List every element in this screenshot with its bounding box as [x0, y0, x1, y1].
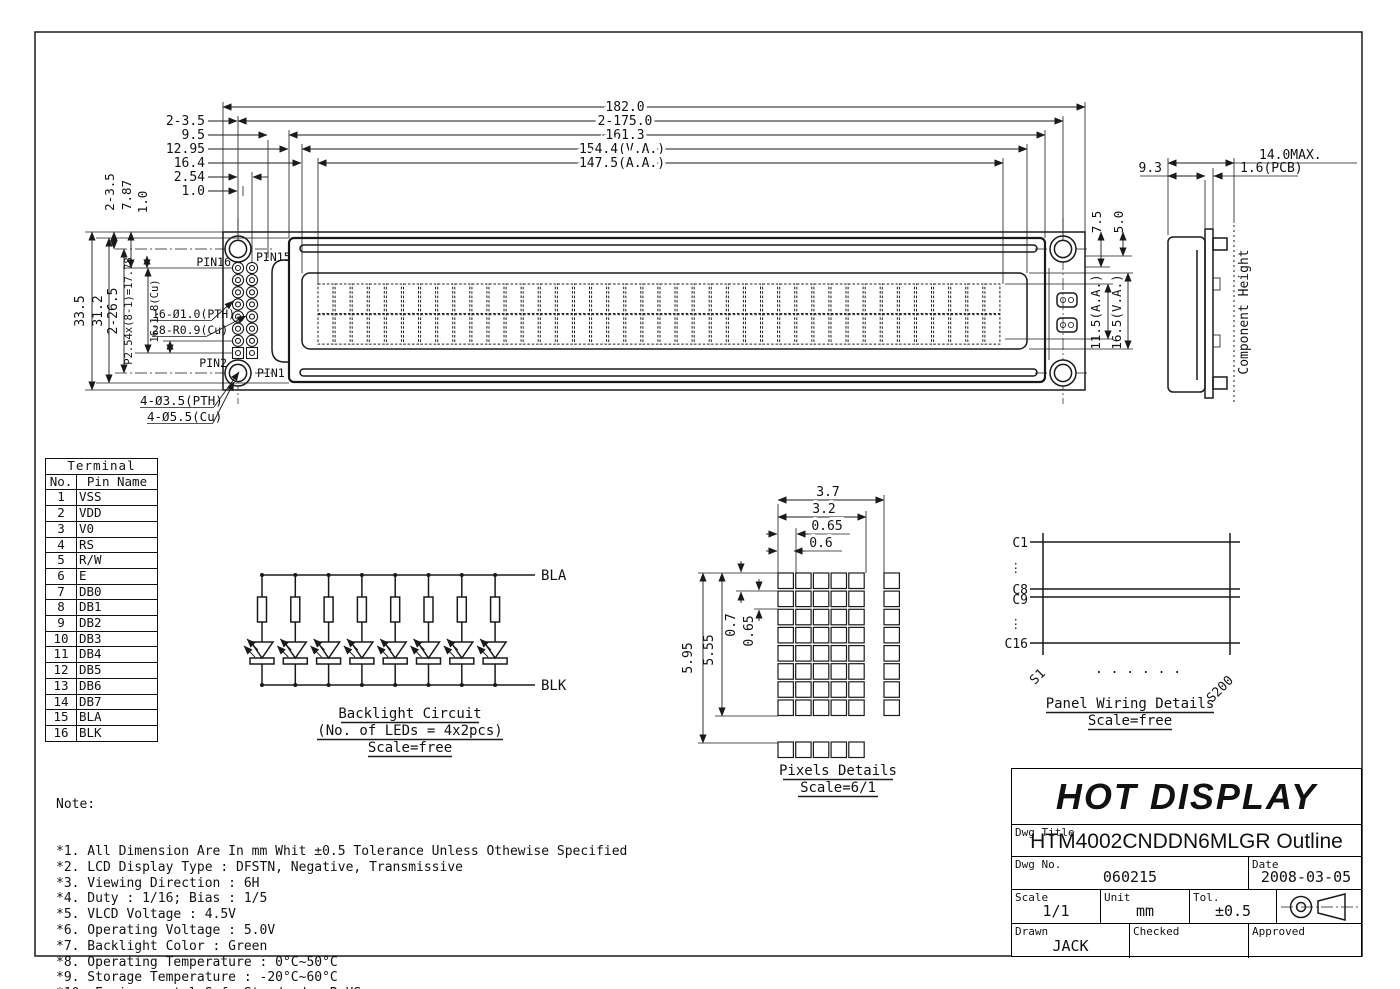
terminal-row: 5R/W	[46, 553, 158, 569]
pixel-cell	[778, 627, 793, 643]
char-cell	[369, 284, 384, 314]
wiring-title: Panel Wiring Details	[1046, 696, 1215, 712]
char-cell	[557, 315, 572, 345]
title-block: HOT DISPLAY Dwg Title HTM4002CNDDN6MLGR …	[1011, 768, 1362, 957]
led-branch	[344, 573, 374, 687]
pixel-cell	[813, 700, 828, 716]
pin-offset-dimensions: 2-3.5 7.87 1.0	[102, 173, 232, 268]
wiring-dots-top: ⋮	[1010, 560, 1023, 575]
backlight-subtitle: (No. of LEDs = 4x2pcs)	[317, 723, 502, 739]
char-cell	[506, 315, 521, 345]
note-line: *1. All Dimension Are In mm Whit ±0.5 To…	[56, 844, 627, 860]
pixel-cell	[778, 573, 793, 589]
dim-16-1p8: 16-1.8(Cu)	[149, 279, 161, 342]
pixel-cell	[849, 742, 864, 758]
pixel-cell	[849, 627, 864, 643]
pixel-cell	[796, 646, 811, 662]
terminal-pin-name: DB1	[77, 600, 158, 616]
char-cell	[643, 284, 658, 314]
pixel-cell	[778, 591, 793, 607]
char-cell	[865, 315, 880, 345]
dwg-title-row: Dwg Title HTM4002CNDDN6MLGR Outline	[1012, 824, 1361, 856]
terminal-pin-name: DB0	[77, 584, 158, 600]
resistor	[291, 597, 300, 622]
dim-161: 161.3	[605, 128, 644, 143]
note-line: *5. VLCD Voltage : 4.5V	[56, 907, 627, 923]
pixel-cell	[778, 609, 793, 625]
pixel-cell	[849, 573, 864, 589]
terminal-no: 15	[46, 710, 77, 726]
char-cell	[763, 284, 778, 314]
backlight-circuit: BLA BLK Backlight Circuit (No. of LEDs =…	[244, 568, 567, 757]
char-cell	[934, 284, 949, 314]
led-branch	[477, 573, 507, 687]
pin-hole	[236, 314, 241, 319]
pixels-title: Pixels Details	[779, 763, 897, 779]
pixel-cell	[831, 664, 846, 680]
dim-16p5-va: 16.5(V.A.)	[1109, 274, 1124, 349]
terminal-no: 2	[46, 506, 77, 522]
char-cell	[917, 284, 932, 314]
dim-31p2: 31.2	[91, 295, 106, 326]
char-cell	[489, 315, 504, 345]
char-cell	[746, 284, 761, 314]
pixel-cell	[796, 682, 811, 698]
led-triangle	[384, 642, 406, 658]
pin-hole	[250, 326, 255, 331]
dim-9p3: 9.3	[1139, 161, 1162, 176]
char-cell	[677, 284, 692, 314]
pixel-cell	[831, 646, 846, 662]
terminal-table: Terminal No. Pin Name 1VSS2VDD3V04RS5R/W…	[45, 458, 158, 742]
dim-pin-2-3p5: 2-3.5	[102, 173, 117, 211]
led-triangle	[418, 642, 440, 658]
pixel-cell	[831, 700, 846, 716]
pixel-cell	[796, 591, 811, 607]
terminal-row: 12DB5	[46, 663, 158, 679]
pin-hole	[236, 326, 241, 331]
terminal-row: 10DB3	[46, 631, 158, 647]
char-cell	[917, 315, 932, 345]
terminal-row: 2VDD	[46, 506, 158, 522]
pin-hole	[236, 266, 241, 271]
pcb-side	[1205, 229, 1213, 398]
resistor	[357, 597, 366, 622]
emission-arrow	[377, 646, 388, 657]
terminal-no: 6	[46, 568, 77, 584]
pin15-label: PIN15	[256, 250, 291, 264]
px-dim-5p95: 5.95	[681, 642, 696, 673]
pin-hole	[236, 290, 241, 295]
pixel-cell	[849, 609, 864, 625]
char-cell	[404, 315, 419, 345]
char-cell	[831, 284, 846, 314]
pin-hole	[250, 338, 255, 343]
char-cell	[660, 315, 675, 345]
wiring-c1: C1	[1012, 536, 1028, 551]
note-line: *3. Viewing Direction : 6H	[56, 876, 627, 892]
char-cell	[540, 315, 555, 345]
resistor	[424, 597, 433, 622]
component-height-label: Component Height	[1237, 249, 1252, 374]
pixel-cell	[813, 591, 828, 607]
px-dim-0p6: 0.6	[809, 536, 832, 551]
terminal-pin-name: DB2	[77, 616, 158, 632]
backlight-title: Backlight Circuit	[338, 706, 481, 722]
resistor	[457, 597, 466, 622]
char-cell	[592, 284, 607, 314]
terminal-pin-name: R/W	[77, 553, 158, 569]
terminal-row: 3V0	[46, 521, 158, 537]
pixel-cell	[813, 742, 828, 758]
terminal-no: 7	[46, 584, 77, 600]
char-cell	[643, 315, 658, 345]
dim-11p5-aa: 11.5(A.A.)	[1088, 274, 1103, 349]
px-dim-5p55: 5.55	[702, 634, 717, 665]
terminal-no: 10	[46, 631, 77, 647]
dim-7p5: 7.5	[1089, 211, 1104, 234]
pth-note: 16-Ø1.0(PTH)	[152, 307, 235, 321]
terminal-pin-name: BLK	[77, 725, 158, 741]
terminal-col-name: Pin Name	[77, 474, 158, 490]
approved-cell: Approved	[1248, 924, 1363, 958]
tol-value: ±0.5	[1190, 902, 1276, 920]
char-cell	[728, 315, 743, 345]
dim-16p4: 16.4	[174, 156, 205, 171]
pixels-scale: Scale=6/1	[800, 780, 876, 796]
char-cell	[848, 315, 863, 345]
char-cell	[763, 315, 778, 345]
emission-arrow	[347, 639, 358, 650]
emission-arrow	[247, 639, 258, 650]
note-line: *4. Duty : 1/16; Bias : 1/5	[56, 891, 627, 907]
emission-arrow	[444, 646, 455, 657]
char-cell	[797, 284, 812, 314]
led-triangle	[484, 642, 506, 658]
pixel-cell	[831, 682, 846, 698]
pixel-cell	[884, 591, 899, 607]
wiring-scale: Scale=free	[1088, 713, 1172, 729]
terminal-pin-name: RS	[77, 537, 158, 553]
pixel-cell	[831, 742, 846, 758]
projection-symbol-cell	[1276, 890, 1363, 923]
dwg-no-value: 060215	[1012, 868, 1248, 886]
company-name: HOT DISPLAY	[1012, 769, 1361, 824]
dim-9p5: 9.5	[182, 128, 205, 143]
emission-arrow	[244, 646, 255, 657]
terminal-row: 11DB4	[46, 647, 158, 663]
emission-arrow	[314, 639, 325, 650]
char-cell	[660, 284, 675, 314]
output-pads	[1057, 293, 1077, 332]
char-cell	[951, 315, 966, 345]
dwg-no-cell: Dwg No. 060215	[1012, 857, 1248, 889]
char-cell	[848, 284, 863, 314]
terminal-no: 9	[46, 616, 77, 632]
terminal-pin-name: V0	[77, 521, 158, 537]
pixel-cell	[813, 573, 828, 589]
terminal-pin-name: DB4	[77, 647, 158, 663]
pixel-cell	[778, 682, 793, 698]
dim-5p0: 5.0	[1111, 211, 1126, 234]
side-view: 14.0MAX. 9.3 1.6(PCB) Component Height	[1139, 148, 1357, 402]
dim-175: 2-175.0	[598, 114, 653, 129]
led-triangle	[451, 642, 473, 658]
emission-arrow	[411, 646, 422, 657]
char-cell	[421, 284, 436, 314]
terminal-pin-name: BLA	[77, 710, 158, 726]
terminal-pin-name: DB7	[77, 694, 158, 710]
character-cells	[318, 284, 1000, 344]
char-cell	[575, 284, 590, 314]
char-cell	[540, 284, 555, 314]
checked-cell: Checked	[1129, 924, 1248, 958]
pixel-cell	[849, 591, 864, 607]
led-branch	[411, 573, 441, 687]
pixel-cell	[831, 591, 846, 607]
char-cell	[352, 284, 367, 314]
char-cell	[694, 284, 709, 314]
dwg-title-value: HTM4002CNDDN6MLGR Outline	[1012, 830, 1361, 854]
char-cell	[899, 284, 914, 314]
char-cell	[780, 315, 795, 345]
terminal-no: 13	[46, 678, 77, 694]
char-cell	[882, 315, 897, 345]
led-branch	[444, 573, 474, 687]
char-cell	[455, 284, 470, 314]
char-cell	[421, 315, 436, 345]
terminal-col-no: No.	[46, 474, 77, 490]
char-cell	[934, 315, 949, 345]
char-cell	[438, 315, 453, 345]
pixel-cell	[884, 609, 899, 625]
pixel-cell	[796, 609, 811, 625]
front-view: PIN16 PIN15 PIN2 PIN1 16-Ø1.0(PTH) 28-R0…	[115, 218, 1090, 424]
drawn-value: JACK	[1012, 937, 1129, 955]
char-cell	[455, 315, 470, 345]
char-cell	[523, 315, 538, 345]
resistor	[391, 597, 400, 622]
terminal-row: 13DB6	[46, 678, 158, 694]
terminal-no: 14	[46, 694, 77, 710]
panel-wiring: C1 ⋮ C8 C9 ⋮ C16 S1 S200 . . . . . . Pan…	[1005, 533, 1240, 730]
dim-2p54: 2.54	[174, 170, 205, 185]
char-cell	[386, 315, 401, 345]
terminal-pin-name: DB5	[77, 663, 158, 679]
pixel-grid	[778, 573, 899, 758]
pixel-cell	[849, 682, 864, 698]
pin-side-bottom	[1213, 377, 1227, 389]
checked-label: Checked	[1133, 925, 1179, 938]
unit-cell: Unit mm	[1100, 890, 1189, 923]
terminal-pin-name: E	[77, 568, 158, 584]
led-triangle	[251, 642, 273, 658]
px-dim-0p65: 0.65	[811, 519, 842, 534]
anode-label: BLA	[541, 568, 567, 584]
char-cell	[814, 284, 829, 314]
terminal-row: 4RS	[46, 537, 158, 553]
char-cell	[386, 284, 401, 314]
terminal-pin-name: VSS	[77, 490, 158, 506]
dim-147-aa: 147.5(A.A.)	[579, 156, 665, 171]
char-cell	[985, 284, 1000, 314]
pin-hole	[250, 266, 255, 271]
pixel-cell	[884, 664, 899, 680]
pixel-cell	[813, 682, 828, 698]
led-branches	[244, 573, 507, 687]
char-cell	[746, 315, 761, 345]
dim-pin-7p87: 7.87	[119, 180, 134, 210]
pixel-cell	[796, 664, 811, 680]
char-cell	[797, 315, 812, 345]
emission-arrow	[477, 646, 488, 657]
bezel-bottom-bar	[300, 369, 1037, 376]
terminal-no: 5	[46, 553, 77, 569]
char-cell	[728, 284, 743, 314]
wiring-dots-h: . . . . . .	[1095, 662, 1181, 677]
scale-row: Scale 1/1 Unit mm Tol. ±0.5	[1012, 889, 1361, 923]
note-line: *9. Storage Temperature : -20°C~60°C	[56, 970, 627, 986]
terminal-row: 6E	[46, 568, 158, 584]
terminal-pin-name: DB6	[77, 678, 158, 694]
resistor	[491, 597, 500, 622]
pixel-cell	[884, 646, 899, 662]
pin-hole	[250, 278, 255, 283]
pixel-cell	[849, 700, 864, 716]
pin-hole	[236, 338, 241, 343]
char-cell	[369, 315, 384, 345]
char-cell	[626, 284, 641, 314]
zebra-connector	[272, 260, 289, 362]
dim-154-va: 154.4(V.A.)	[579, 142, 665, 157]
sign-row: Drawn JACK Checked Approved	[1012, 923, 1361, 958]
char-cell	[831, 315, 846, 345]
char-cell	[609, 315, 624, 345]
led-branch	[244, 573, 274, 687]
pin-side-top	[1213, 238, 1227, 250]
char-cell	[968, 315, 983, 345]
char-cell	[489, 284, 504, 314]
char-cell	[523, 284, 538, 314]
drawn-cell: Drawn JACK	[1012, 924, 1129, 958]
terminal-row: 1VSS	[46, 490, 158, 506]
char-cell	[472, 315, 487, 345]
note-line: *6. Operating Voltage : 5.0V	[56, 923, 627, 939]
emission-arrow	[311, 646, 322, 657]
pixel-cell	[813, 664, 828, 680]
hole-cu-note: 4-Ø5.5(Cu)	[147, 409, 222, 424]
dim-2-3p5: 2-3.5	[166, 114, 205, 129]
char-cell	[592, 315, 607, 345]
dim-1p0: 1.0	[182, 184, 205, 199]
char-cell	[677, 315, 692, 345]
unit-value: mm	[1101, 902, 1189, 920]
char-cell	[335, 315, 350, 345]
pin-hole	[236, 351, 241, 356]
pixel-cell	[831, 573, 846, 589]
terminal-no: 16	[46, 725, 77, 741]
terminal-row: 7DB0	[46, 584, 158, 600]
pixel-cell	[849, 664, 864, 680]
pin2-label: PIN2	[199, 356, 227, 370]
terminal-row: 8DB1	[46, 600, 158, 616]
terminal-row: 14DB7	[46, 694, 158, 710]
dim-182: 182.0	[605, 100, 644, 115]
terminal-row: 15BLA	[46, 710, 158, 726]
pin1-label: PIN1	[257, 366, 285, 380]
cu-note: 28-R0.9(Cu)	[152, 323, 228, 337]
led-branch	[311, 573, 341, 687]
approved-label: Approved	[1252, 925, 1305, 938]
pin-hole	[236, 278, 241, 283]
terminal-row: 9DB2	[46, 616, 158, 632]
engineering-drawing-page: PIN16 PIN15 PIN2 PIN1 16-Ø1.0(PTH) 28-R0…	[0, 0, 1400, 989]
char-cell	[318, 315, 333, 345]
pin-hole	[250, 290, 255, 295]
pixels-details: 3.7 3.2 0.65 0.6 5.95 5.55 0.7 0.65 Pixe…	[681, 485, 899, 797]
pixel-cell	[778, 646, 793, 662]
emission-arrow	[414, 639, 425, 650]
char-cell	[506, 284, 521, 314]
pin-hole	[250, 314, 255, 319]
char-cell	[968, 284, 983, 314]
backlight-scale: Scale=free	[368, 740, 452, 756]
pixel-cell	[813, 646, 828, 662]
px-dim-3p7: 3.7	[816, 485, 839, 500]
led-branch	[277, 573, 307, 687]
char-cell	[711, 315, 726, 345]
led-triangle	[318, 642, 340, 658]
pin-hole	[250, 302, 255, 307]
char-cell	[951, 284, 966, 314]
char-cell	[404, 284, 419, 314]
pixel-cell	[884, 700, 899, 716]
wiring-s1: S1	[1027, 666, 1049, 688]
wiring-c16: C16	[1005, 637, 1028, 652]
pin16-label: PIN16	[196, 255, 231, 269]
char-cell	[318, 284, 333, 314]
hole-pth-note: 4-Ø3.5(PTH)	[140, 393, 223, 408]
terminal-pin-name: DB3	[77, 631, 158, 647]
char-cell	[814, 315, 829, 345]
char-cell	[780, 284, 795, 314]
pin-pads	[232, 262, 257, 358]
note-line: *7. Backlight Color : Green	[56, 939, 627, 955]
char-cell	[575, 315, 590, 345]
pixel-cell	[831, 627, 846, 643]
terminal-row: 16BLK	[46, 725, 158, 741]
pixel-cell	[796, 627, 811, 643]
dim-1p6-pcb: 1.6(PCB)	[1240, 161, 1303, 176]
pixel-cell	[831, 609, 846, 625]
pixel-cell	[778, 742, 793, 758]
terminal-table-title: Terminal	[46, 459, 158, 475]
char-cell	[985, 315, 1000, 345]
dwg-no-row: Dwg No. 060215 Date 2008-03-05	[1012, 856, 1361, 889]
px-dim-3p2: 3.2	[812, 502, 835, 517]
scale-cell: Scale 1/1	[1012, 890, 1100, 923]
terminal-no: 1	[46, 490, 77, 506]
resistor	[324, 597, 333, 622]
terminal-no: 12	[46, 663, 77, 679]
char-cell	[694, 315, 709, 345]
pixel-cell	[796, 700, 811, 716]
terminal-no: 4	[46, 537, 77, 553]
resistor	[258, 597, 267, 622]
pin-hole	[236, 302, 241, 307]
char-cell	[865, 284, 880, 314]
projection-symbol-icon	[1277, 890, 1362, 923]
